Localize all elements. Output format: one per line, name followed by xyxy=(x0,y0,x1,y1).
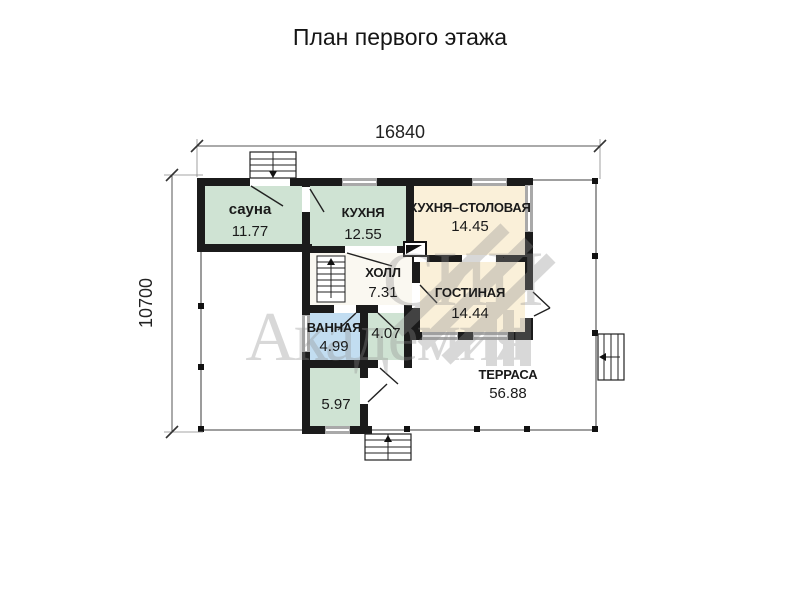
kitchen-dining-label: КУХНЯ–СТОЛОВАЯ xyxy=(409,200,530,215)
hall-label: ХОЛЛ xyxy=(365,265,401,280)
floor-plan-drawing: СИП Академия 16840 10700 сауна 11.77 КУХ… xyxy=(0,0,800,600)
bathroom-area: 4.99 xyxy=(319,338,348,355)
terrace-area: 56.88 xyxy=(489,385,527,402)
stairs-interior-hall xyxy=(317,256,345,302)
stairs-bottom-exterior xyxy=(365,434,411,460)
living-room-area: 14.44 xyxy=(451,305,489,322)
sauna-label: сауна xyxy=(229,201,272,218)
terrace-label: ТЕРРАСА xyxy=(479,367,539,382)
dimension-width-label: 16840 xyxy=(375,122,425,142)
kitchen-dining-area: 14.45 xyxy=(451,218,489,235)
kitchen-label: КУХНЯ xyxy=(342,205,385,220)
stairs-top-exterior xyxy=(250,152,296,178)
kitchen-area: 12.55 xyxy=(344,226,382,243)
bathroom-label: ВАННАЯ xyxy=(307,320,361,335)
stairs-right-exterior xyxy=(598,334,624,380)
floor-plan-page: СИП Академия 16840 10700 сауна 11.77 КУХ… xyxy=(0,0,800,600)
hall-area: 7.31 xyxy=(368,284,397,301)
page-title: План первого этажа xyxy=(293,24,507,50)
dimension-height-label: 10700 xyxy=(136,278,156,328)
living-room-label: ГОСТИНАЯ xyxy=(435,285,505,300)
room-4-07-area: 4.07 xyxy=(371,325,400,342)
room-5-97-area: 5.97 xyxy=(321,396,350,413)
sauna-area: 11.77 xyxy=(232,223,268,240)
